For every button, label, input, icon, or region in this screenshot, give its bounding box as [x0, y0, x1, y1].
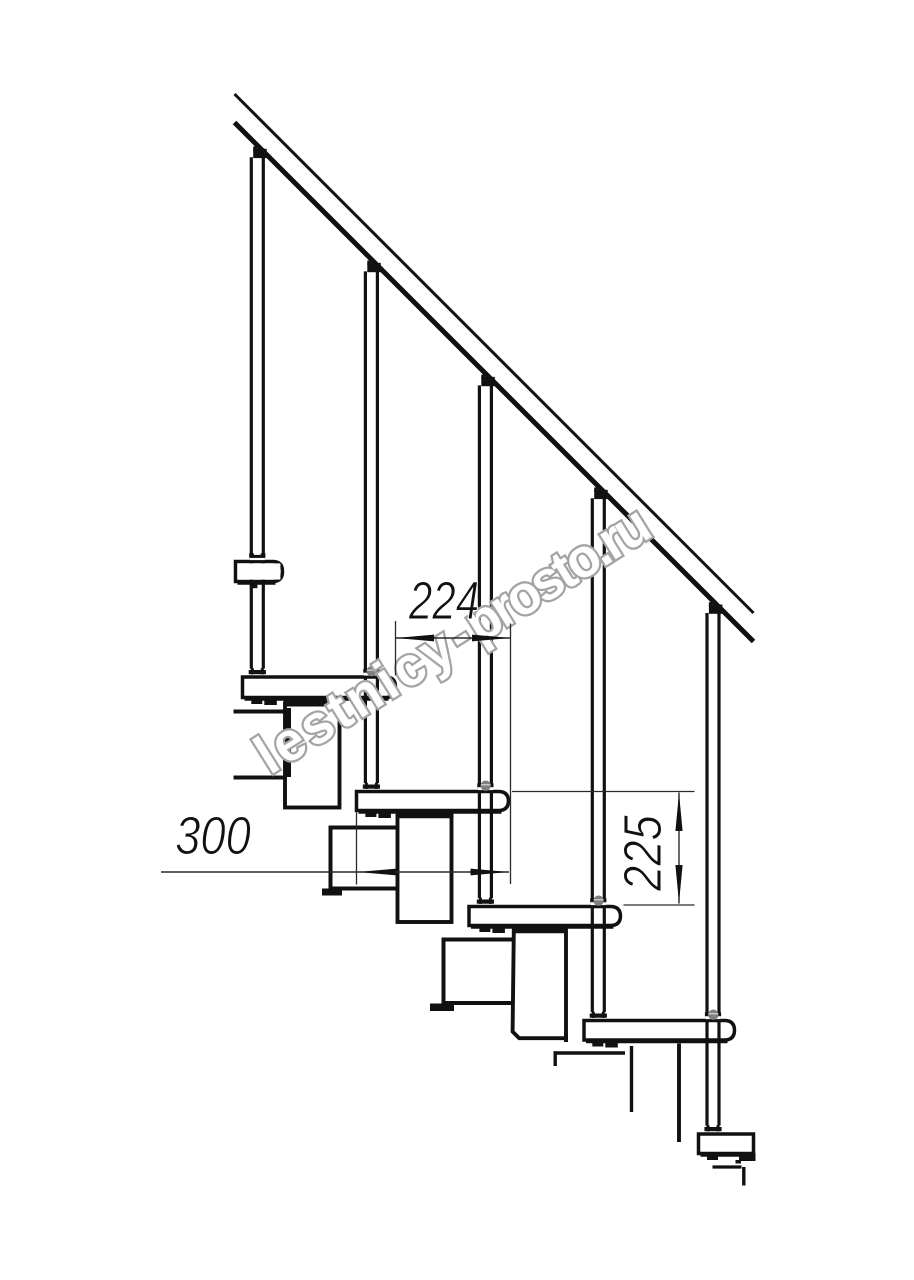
- svg-text:225: 225: [612, 815, 673, 892]
- svg-text:224: 224: [408, 571, 479, 631]
- svg-text:300: 300: [175, 805, 251, 866]
